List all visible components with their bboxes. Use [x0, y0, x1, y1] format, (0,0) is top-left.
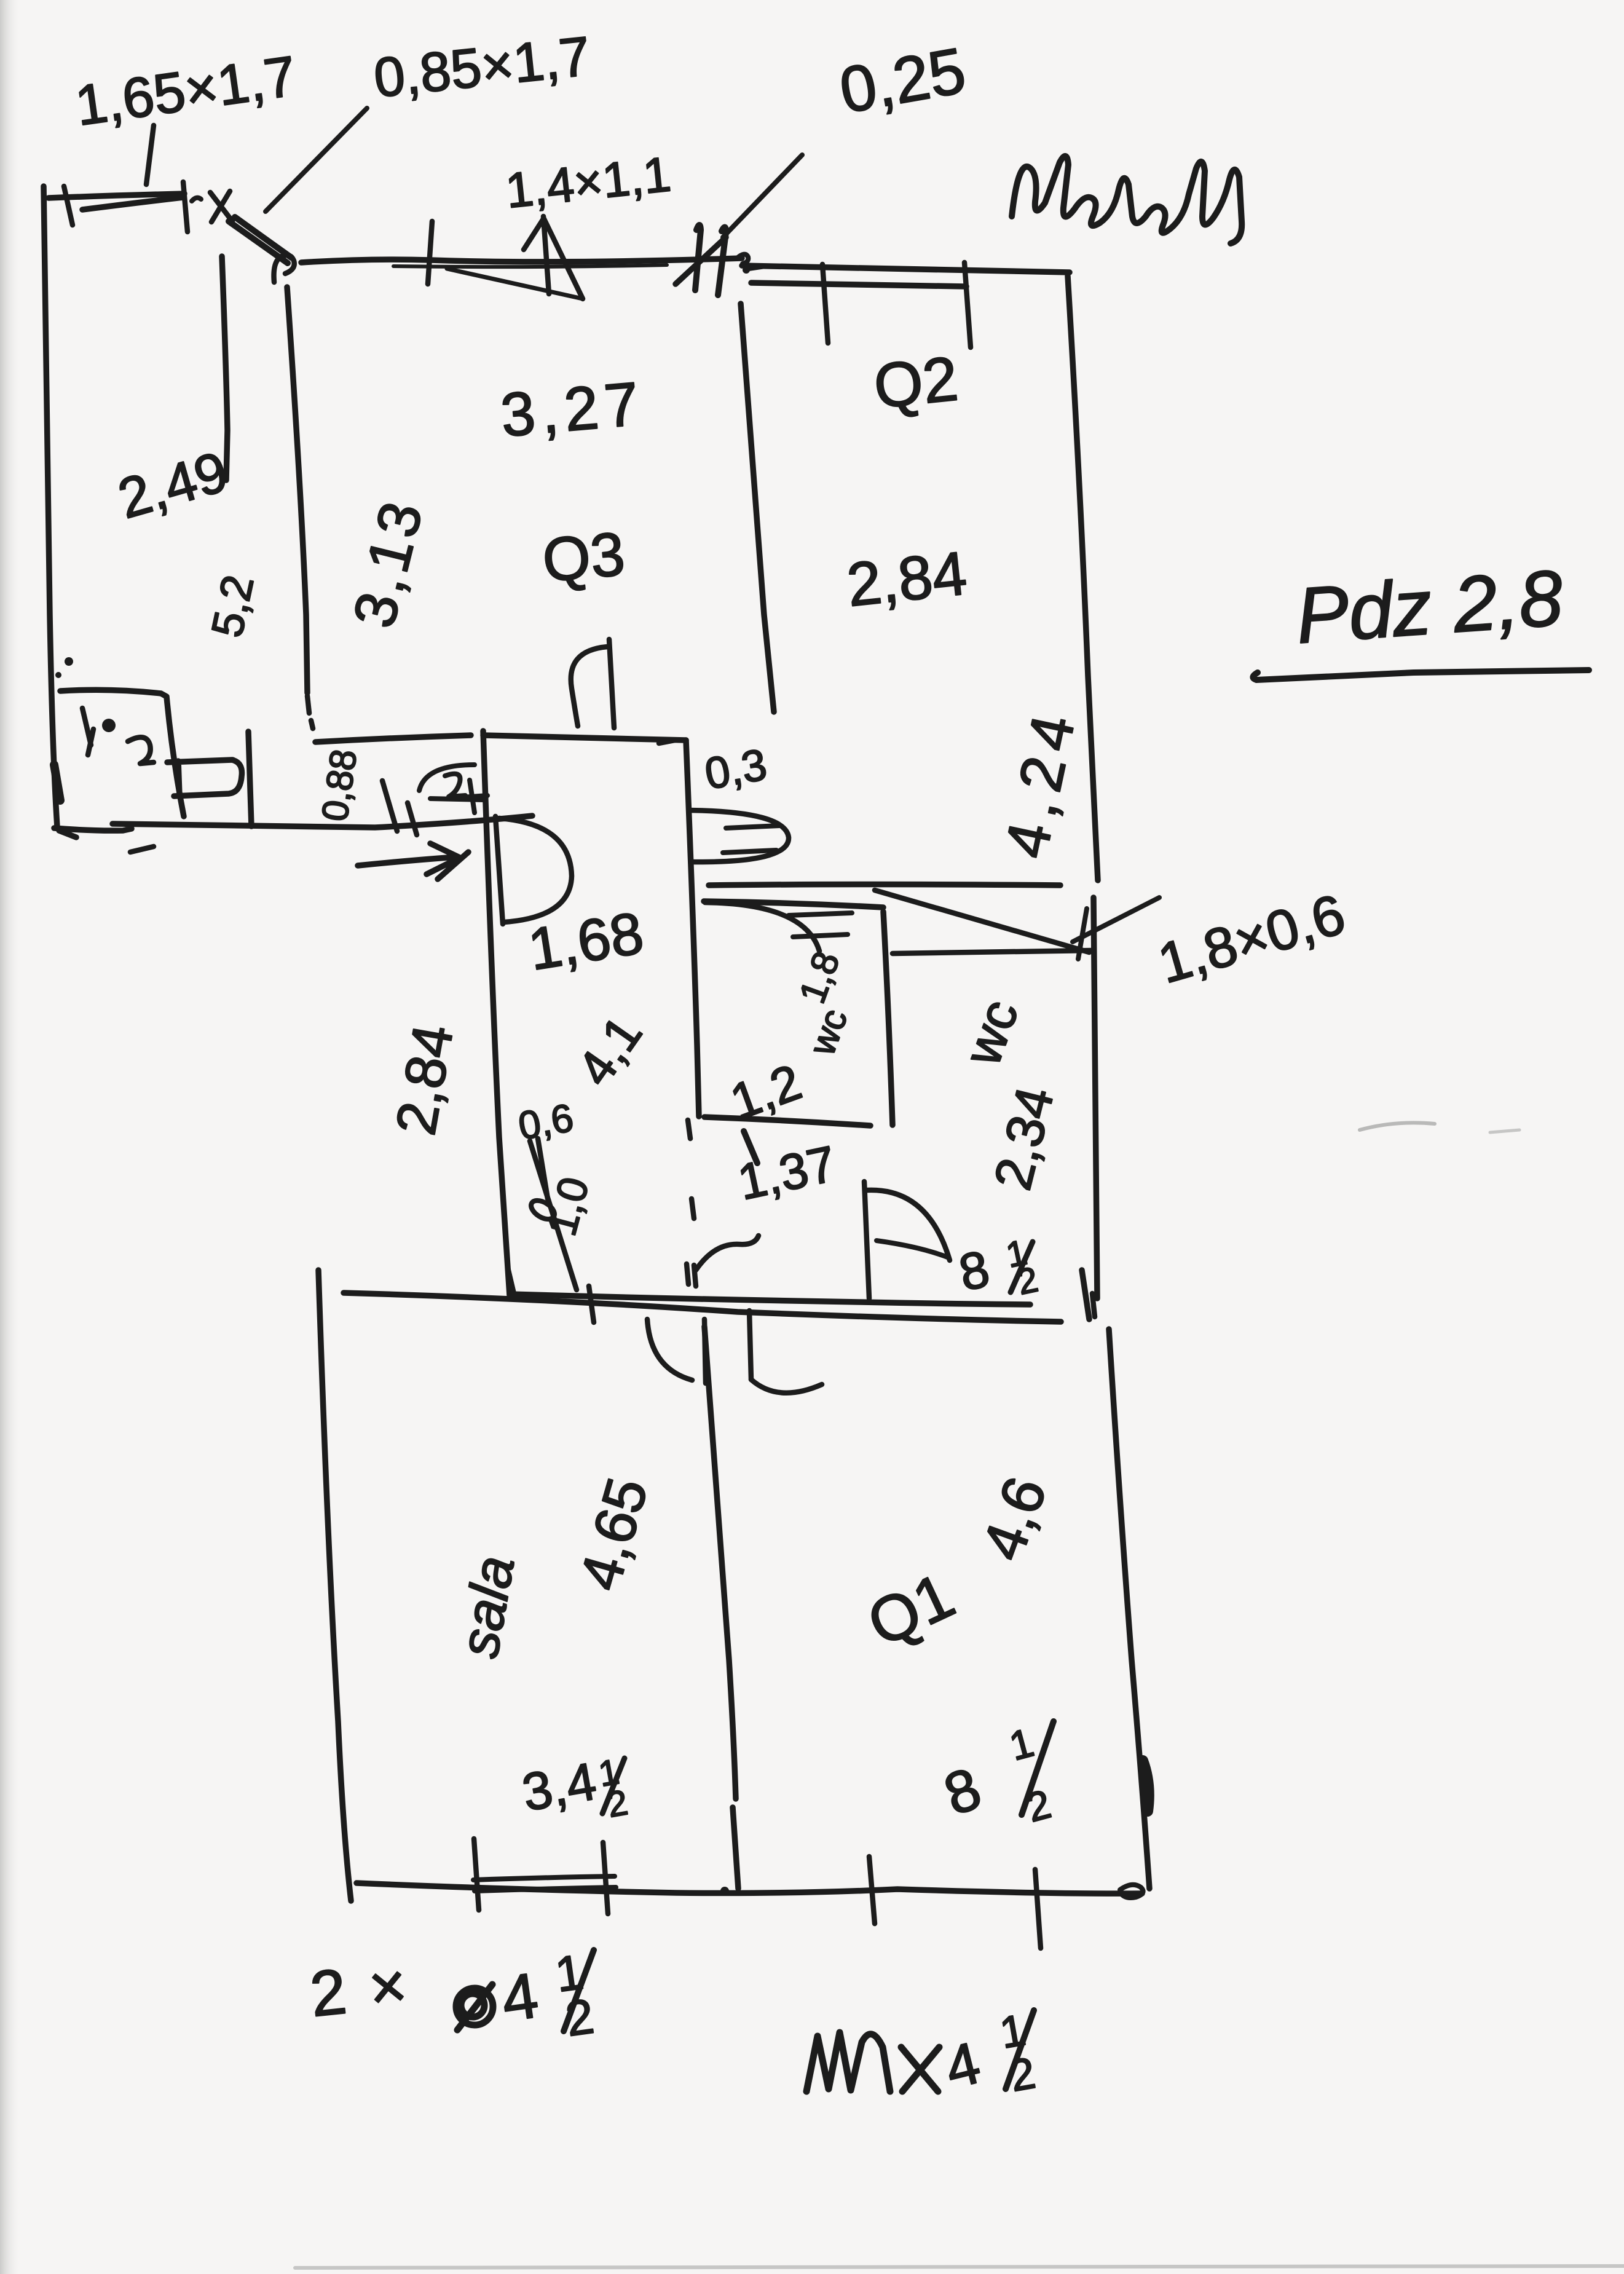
svg-text:2,84: 2,84: [844, 539, 970, 620]
svg-text:2×: 2×: [307, 1947, 433, 2031]
svg-text:Pdz 2,8: Pdz 2,8: [1293, 554, 1566, 660]
svg-text:0,6: 0,6: [515, 1095, 577, 1148]
svg-text:3,4: 3,4: [518, 1751, 601, 1822]
svg-text:3,27: 3,27: [498, 369, 648, 450]
svg-text:Q3: Q3: [540, 519, 628, 595]
svg-text:0,3: 0,3: [701, 740, 770, 799]
svg-text:Q2: Q2: [870, 343, 961, 422]
